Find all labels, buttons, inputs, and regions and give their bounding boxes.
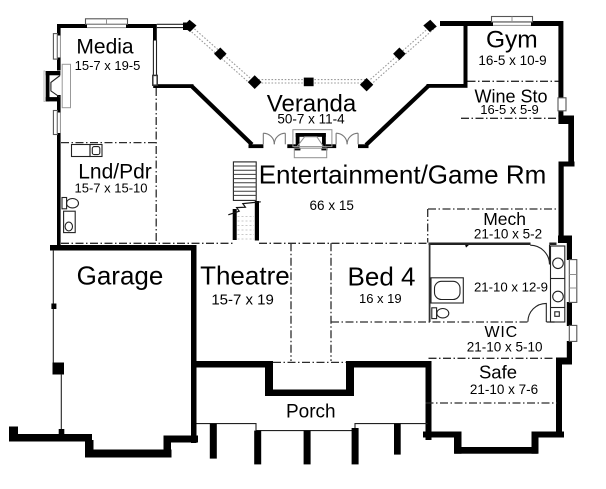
svg-text:Theatre: Theatre	[200, 261, 290, 291]
svg-text:16 x 19: 16 x 19	[359, 291, 402, 306]
svg-text:Porch: Porch	[286, 402, 336, 423]
svg-text:Media: Media	[76, 36, 134, 59]
svg-text:16-5 x 10-9: 16-5 x 10-9	[478, 53, 546, 68]
svg-text:Bed 4: Bed 4	[348, 262, 416, 292]
svg-text:Gym: Gym	[486, 27, 538, 54]
svg-text:21-10 x 12-9: 21-10 x 12-9	[474, 280, 548, 295]
svg-text:Safe: Safe	[479, 362, 517, 383]
svg-text:50-7 x 11-4: 50-7 x 11-4	[277, 112, 345, 127]
svg-text:WIC: WIC	[484, 324, 518, 341]
svg-text:15-7 x 19: 15-7 x 19	[211, 292, 274, 309]
svg-text:21-10 x 7-6: 21-10 x 7-6	[470, 382, 538, 397]
svg-text:66 x 15: 66 x 15	[310, 198, 354, 213]
svg-text:15-7 x 15-10: 15-7 x 15-10	[75, 181, 148, 196]
svg-text:15-7 x 19-5: 15-7 x 19-5	[75, 58, 141, 73]
svg-text:Garage: Garage	[77, 261, 164, 291]
svg-text:21-10 x 5-10: 21-10 x 5-10	[467, 340, 543, 355]
svg-text:21-10 x 5-2: 21-10 x 5-2	[474, 227, 542, 242]
svg-text:Entertainment/Game Rm: Entertainment/Game Rm	[259, 160, 547, 190]
svg-text:16-5 x 5-9: 16-5 x 5-9	[480, 102, 539, 117]
